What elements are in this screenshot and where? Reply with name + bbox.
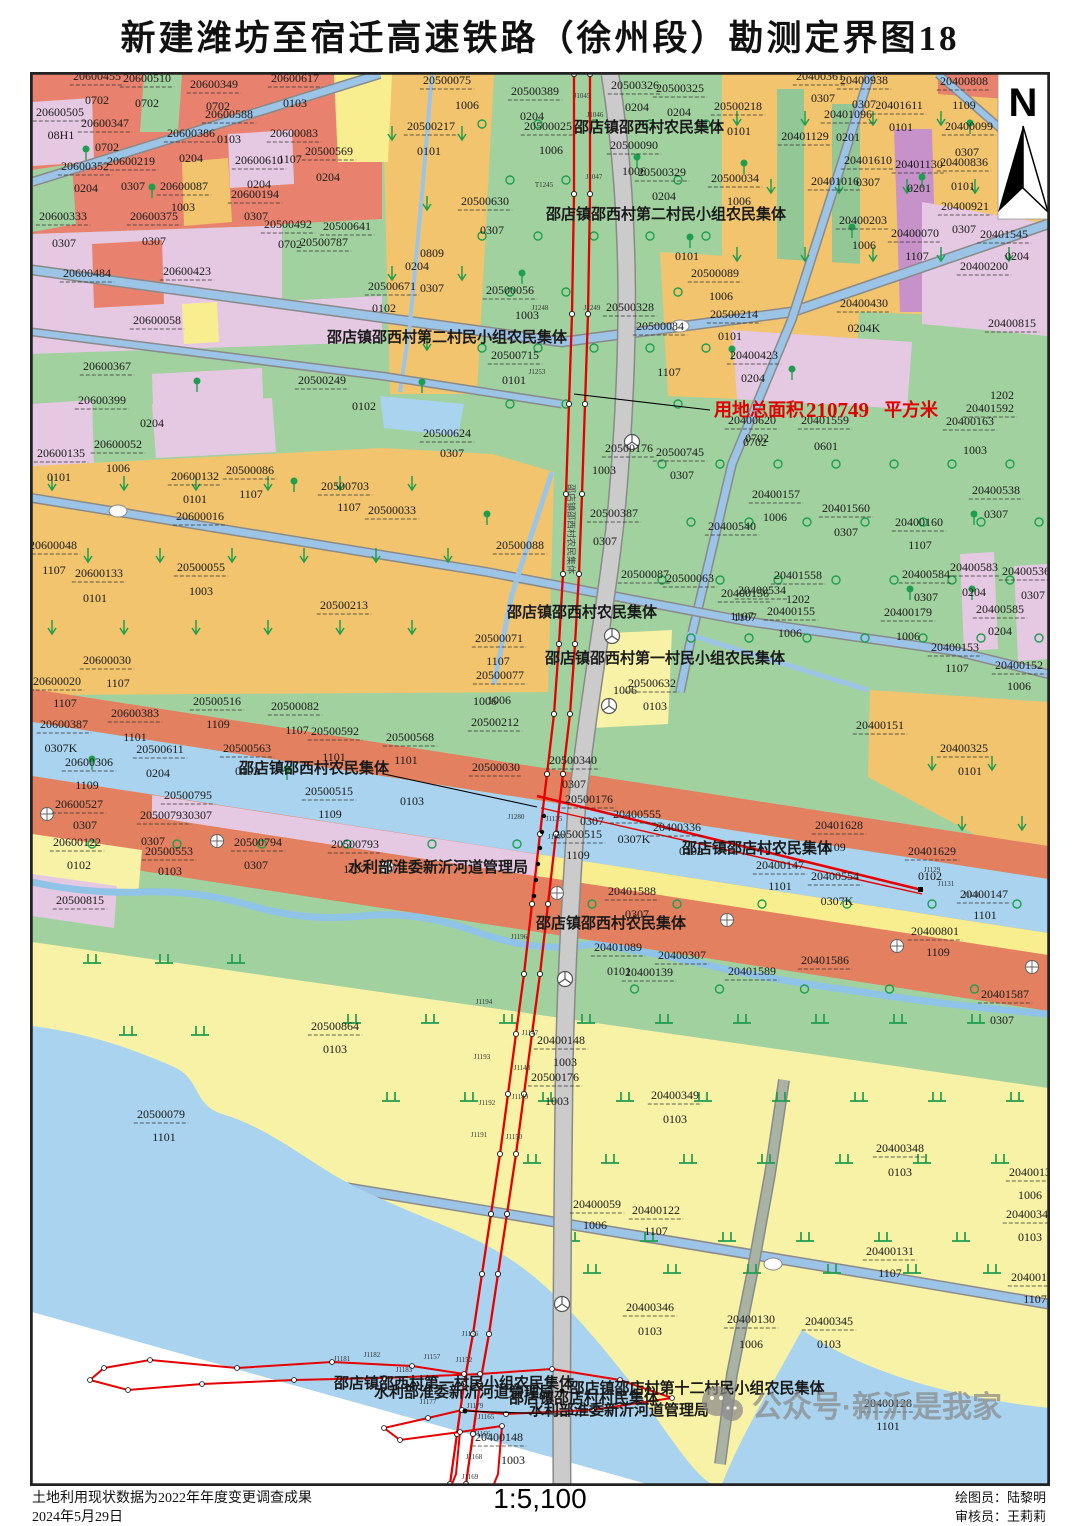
parcel-label: 20400938 <box>840 74 888 87</box>
parcel-label: 20600510 <box>123 74 171 85</box>
parcel-label: 20500213 <box>320 598 368 612</box>
parcel-label: 1109 <box>318 807 342 821</box>
owner-label: 邵店镇邵西村农民集体 <box>535 914 687 932</box>
parcel-label: 20600087 <box>160 179 208 193</box>
parcel-label: 20500030 <box>472 760 520 774</box>
parcel-label: 20401096 <box>824 107 872 121</box>
survey-point <box>521 971 526 976</box>
parcel-label: 1003 <box>553 1055 577 1069</box>
parcel-label: 20400347 <box>1006 1207 1048 1221</box>
parcel-label: 0204 <box>962 585 986 599</box>
parcel-label: 1006 <box>106 461 130 475</box>
parcel-label: 0101 <box>47 470 71 484</box>
survey-point <box>488 1211 493 1216</box>
parcel-label: 20500249 <box>298 373 346 387</box>
parcel-label: 20600058 <box>133 313 181 327</box>
parcel-label: 20600132 <box>171 469 219 483</box>
tree-symbol <box>291 478 298 485</box>
parcel-label: 20500671 <box>368 279 416 293</box>
tree-symbol <box>83 146 90 153</box>
parcel-label: 20600133 <box>75 566 123 580</box>
parcel-label: 20500630 <box>461 194 509 208</box>
parcel-label: 20400536 <box>1002 564 1048 578</box>
parcel-label: 20500089 <box>691 266 739 280</box>
parcel-label: 0601 <box>814 439 838 453</box>
parcel-label: 0103 <box>663 1112 687 1126</box>
tree-symbol <box>484 511 491 518</box>
parcel-label: 20400808 <box>940 74 988 88</box>
survey-point-label: J1193 <box>474 1053 491 1061</box>
parcel-label: 0204 <box>405 259 429 273</box>
parcel-label: 20500611 <box>136 742 184 756</box>
parcel-label: 20400534 <box>738 583 786 597</box>
owner-label: 邵店镇邵西村第二村民小组农民集体 <box>545 205 787 223</box>
survey-point-label: J1135 <box>546 815 563 823</box>
survey-point <box>497 1151 502 1156</box>
parcel-label: 20600588 <box>205 107 253 121</box>
parcel-label: 1107 <box>945 661 969 675</box>
parcel-label: 1109 <box>566 848 590 862</box>
survey-point <box>536 862 540 866</box>
survey-point-label: J1196 <box>511 933 528 941</box>
parcel-label: 20500077 <box>476 668 524 682</box>
parcel-label: 20400148 <box>537 1033 585 1047</box>
parcel-label: 20500794 <box>234 835 282 849</box>
parcel-label: 0307K <box>618 832 651 846</box>
parcel-label: 20500787 <box>300 235 348 249</box>
survey-point-label: J1280 <box>508 813 525 821</box>
tree-symbol <box>634 154 641 161</box>
parcel-label: 20600455 <box>73 74 121 83</box>
parcel-label: 1109 <box>206 717 230 731</box>
parcel-label: 0101 <box>675 249 699 263</box>
survey-point <box>513 1031 518 1036</box>
parcel-label: 20600347 <box>81 116 129 130</box>
parcel-label: 0307 <box>593 534 617 548</box>
parcel-label: 1107 <box>285 723 309 737</box>
survey-point-label: J1156 <box>462 1330 479 1338</box>
parcel-label: 1101 <box>973 908 997 922</box>
parcel-label: 20600423 <box>163 264 211 278</box>
parcel-label: 0102 <box>352 399 376 413</box>
tree-symbol <box>907 586 914 593</box>
land-parcel <box>182 302 219 344</box>
survey-point <box>486 1331 491 1336</box>
parcel-label: 0307K <box>821 894 854 908</box>
survey-point <box>292 1378 297 1383</box>
parcel-label: 20600016 <box>176 509 224 523</box>
survey-point-label: J1137 <box>548 833 565 841</box>
parcel-label: 0204 <box>316 170 340 184</box>
owner-label: 邵店镇邵店村农民集体 <box>681 839 833 857</box>
parcel-label: 20600484 <box>63 266 111 280</box>
parcel-label: 0204 <box>667 105 691 119</box>
parcel-label: 20400152 <box>995 658 1043 672</box>
survey-point-label: J1192 <box>479 1099 496 1107</box>
tree-symbol <box>789 366 796 373</box>
parcel-label: 0201 <box>836 130 860 144</box>
parcel-label: 08H1 <box>48 128 75 142</box>
parcel-label: 20600367 <box>83 359 131 373</box>
survey-point <box>458 1430 463 1435</box>
parcel-label: 20600122 <box>53 835 101 849</box>
parcel-label: 20400336 <box>653 820 701 834</box>
parcel-label: 1107 <box>106 676 130 690</box>
parcel-label: 20600048 <box>32 538 77 552</box>
parcel-label: 20400345 <box>805 1314 853 1328</box>
parcel-label: 20400070 <box>891 226 939 240</box>
parcel-label: 20400361 <box>796 74 844 83</box>
parcel-label: 20500063 <box>666 571 714 585</box>
parcel-label: 20500079 <box>137 1107 185 1121</box>
parcel-label: 20500084 <box>636 319 684 333</box>
parcel-label: 20400122 <box>632 1203 680 1217</box>
parcel-label: 20400139 <box>625 965 673 979</box>
parcel-label: 20401629 <box>908 844 956 858</box>
parcel-label: 0103 <box>323 1042 347 1056</box>
parcel-label: 20400540 <box>708 519 756 533</box>
parcel-label: 20400160 <box>895 515 943 529</box>
parcel-label: 20600083 <box>270 126 318 140</box>
parcel-label: 0101 <box>951 179 975 193</box>
parcel-label: 20500516 <box>193 694 241 708</box>
parcel-label: 0307 <box>990 1013 1014 1027</box>
footer-drafter: 绘图员：陆黎明 <box>955 1487 1046 1506</box>
survey-point-label: J1183 <box>396 1366 413 1374</box>
parcel-label: 0702 <box>95 140 119 154</box>
bridge-symbol <box>764 1258 782 1270</box>
parcel-label: 20600375 <box>130 209 178 223</box>
parcel-label: 20401089 <box>594 940 642 954</box>
survey-point-label: J1046 <box>587 111 604 119</box>
survey-point <box>88 1378 93 1383</box>
parcel-label: 20400423 <box>730 348 778 362</box>
footer-reviewer: 审核员：王莉莉 <box>955 1506 1046 1525</box>
parcel-label: 0307 <box>670 468 694 482</box>
parcel-label: 0307 <box>188 808 212 822</box>
survey-point <box>576 571 581 576</box>
survey-point <box>566 401 571 406</box>
parcel-label: 0101 <box>727 124 751 138</box>
survey-point <box>504 1211 509 1216</box>
parcel-label: 1202 <box>990 388 1014 402</box>
survey-point <box>540 830 544 834</box>
parcel-label: 20600617 <box>271 74 319 85</box>
parcel-label: 20600387 <box>40 717 88 731</box>
owner-label: 邵店镇邵西村第一村民小组农民集体 <box>544 649 786 667</box>
parcel-label: 0702 <box>85 93 109 107</box>
parcel-label: 1107 <box>644 1224 668 1238</box>
parcel-label: 0307 <box>121 179 145 193</box>
parcel-label: 0307 <box>580 814 604 828</box>
parcel-label: 0307 <box>984 507 1008 521</box>
parcel-label: 20401016 <box>811 174 859 188</box>
parcel-label: 1107 <box>657 365 681 379</box>
parcel-label: 20500641 <box>323 219 371 233</box>
parcel-label: 1006 <box>778 626 802 640</box>
parcel-label: 20600505 <box>36 105 84 119</box>
parcel-label: 20401628 <box>815 818 863 832</box>
parcel-label: 0307 <box>856 175 880 189</box>
owner-label: 邵店镇邵西村农民集体 <box>506 603 658 621</box>
parcel-label: 0307K <box>45 741 78 755</box>
parcel-label: 20500034 <box>711 171 759 185</box>
parcel-label: 20500212 <box>471 715 519 729</box>
survey-point-label: J1248 <box>532 304 549 312</box>
parcel-label: 20600383 <box>111 706 159 720</box>
parcel-label: 0204 <box>146 766 170 780</box>
survey-point <box>529 901 534 906</box>
survey-map-svg: 2060045520600510206003492060061707020702… <box>32 74 1048 1484</box>
parcel-label: 20401586 <box>801 953 849 967</box>
parcel-label: 1109 <box>926 945 950 959</box>
parcel-label: 20600306 <box>65 755 113 769</box>
parcel-label: 20500515 <box>305 784 353 798</box>
survey-point <box>585 311 590 316</box>
survey-point <box>538 846 542 850</box>
parcel-label: 1003 <box>189 584 213 598</box>
survey-point <box>382 1426 387 1431</box>
survey-point <box>545 901 550 906</box>
parcel-label: 1006 <box>727 194 751 208</box>
parcel-label: 1107 <box>239 487 263 501</box>
tree-symbol <box>149 184 156 191</box>
parcel-label: 20400130 <box>727 1312 775 1326</box>
parcel-label: 20400584 <box>902 567 950 581</box>
survey-point-label: J1194 <box>476 998 493 1006</box>
parcel-label: 1109 <box>952 98 976 112</box>
survey-point <box>505 1091 510 1096</box>
parcel-label: 20600219 <box>107 154 155 168</box>
parcel-label: 0307 <box>1021 588 1045 602</box>
parcel-label: 20500214 <box>710 307 758 321</box>
parcel-label: 1006 <box>1018 1188 1042 1202</box>
parcel-label: 0101 <box>183 492 207 506</box>
parcel-label: 20400346 <box>626 1300 674 1314</box>
parcel-label: 20400157 <box>752 487 800 501</box>
parcel-label: 0103 <box>888 1165 912 1179</box>
parcel-label: 20400585 <box>976 602 1024 616</box>
survey-point <box>560 571 565 576</box>
parcel-label: 0201 <box>907 181 931 195</box>
parcel-label: 1006 <box>896 629 920 643</box>
parcel-label: 20600399 <box>78 393 126 407</box>
parcel-label: 0702 <box>135 96 159 110</box>
parcel-label: 20600020 <box>33 674 81 688</box>
parcel-label: 20500176 <box>565 792 613 806</box>
parcel-label: 1107 <box>337 500 361 514</box>
survey-point-label: J1179 <box>467 1402 484 1410</box>
survey-point <box>556 641 561 646</box>
parcel-label: 20500715 <box>491 348 539 362</box>
parcel-label: 20500088 <box>496 538 544 552</box>
parcel-label: 20400179 <box>884 605 932 619</box>
parcel-label: 1101 <box>152 1130 176 1144</box>
parcel-label: 20400128 <box>864 1396 912 1410</box>
parcel-label: 0204 <box>74 181 98 195</box>
survey-point-label: J1177 <box>420 1398 437 1406</box>
parcel-label: 20600386 <box>167 126 215 140</box>
parcel-label: 1109 <box>75 778 99 792</box>
parcel-label: 20400921 <box>941 199 989 213</box>
parcel-label: 20500795 <box>164 788 212 802</box>
parcel-label: 20500815 <box>56 893 104 907</box>
parcel-label: 20500592 <box>311 724 359 738</box>
parcel-label: 0101 <box>83 591 107 605</box>
parcel-label: 20500218 <box>714 99 762 113</box>
parcel-label: 20400155 <box>767 604 815 618</box>
survey-point <box>571 191 576 196</box>
parcel-label: 20600194 <box>231 187 279 201</box>
parcel-label: 20400134 <box>1009 1165 1048 1179</box>
survey-point-label: J1253 <box>529 368 546 376</box>
parcel-label: 20500025 <box>524 119 572 133</box>
survey-point <box>398 1438 403 1443</box>
survey-point <box>513 1151 518 1156</box>
parcel-label: 0101 <box>417 144 441 158</box>
survey-point-label: J1150 <box>506 1133 523 1141</box>
parcel-label: 0103 <box>283 96 307 110</box>
survey-point-label: J1168 <box>466 1453 483 1461</box>
survey-point <box>126 1388 131 1393</box>
parcel-label: 20500389 <box>511 84 559 98</box>
survey-point <box>426 1416 431 1421</box>
parcel-label: 20500056 <box>486 283 534 297</box>
parcel-label: 20400131 <box>866 1244 914 1258</box>
parcel-label: 20400151 <box>856 718 904 732</box>
parcel-label: 20500492 <box>264 217 312 231</box>
survey-point-label: T1245 <box>535 181 554 189</box>
owner-label: 邵店镇邵西村农民集体 <box>238 759 390 777</box>
parcel-label: 0307 <box>244 858 268 872</box>
survey-map-page: 新建潍坊至宿迁高速铁路（徐州段）勘测定界图18 2060045520600510… <box>0 0 1080 1526</box>
parcel-label: 20500328 <box>606 300 654 314</box>
parcel-label: 20401560 <box>822 501 870 515</box>
parcel-label: 20600527 <box>55 797 103 811</box>
parcel-label: 1006 <box>709 289 733 303</box>
parcel-label: 20500632 <box>628 676 676 690</box>
tree-symbol <box>687 234 694 241</box>
parcel-label: 0307 <box>73 818 97 832</box>
survey-point <box>569 311 574 316</box>
owner-label: 水利部淮委新沂河道管理局 <box>529 1401 709 1419</box>
survey-point <box>200 1382 205 1387</box>
parcel-label: 0204K <box>848 321 881 335</box>
parcel-label: 20400307 <box>658 948 706 962</box>
owner-label: 邵店镇邵西村农民集体 <box>573 118 725 136</box>
survey-point-label: J1191 <box>471 1131 488 1139</box>
survey-point-label: J1249 <box>584 304 601 312</box>
parcel-label: 1003 <box>592 463 616 477</box>
parcel-label: 0204 <box>652 189 676 203</box>
parcel-label: 0204 <box>741 371 765 385</box>
map-frame: 2060045520600510206003492060061707020702… <box>30 72 1050 1486</box>
parcel-label: 20500033 <box>368 503 416 517</box>
parcel-label: 20400583 <box>950 560 998 574</box>
parcel-label: 20600610 <box>235 153 283 167</box>
parcel-label: 1107 <box>53 696 77 710</box>
parcel-label: 20400163 <box>946 414 994 428</box>
parcel-label: 20600333 <box>39 209 87 223</box>
survey-point <box>544 771 549 776</box>
parcel-label: 20500703 <box>321 479 369 493</box>
parcel-label: 20500563 <box>223 741 271 755</box>
survey-point-label: J1157 <box>424 1353 441 1361</box>
parcel-label: 20400555 <box>613 807 661 821</box>
parcel-label: 20400348 <box>876 1141 924 1155</box>
parcel-label: 0101 <box>889 120 913 134</box>
page-title: 新建潍坊至宿迁高速铁路（徐州段）勘测定界图18 <box>0 10 1080 61</box>
survey-point-label: J1182 <box>364 1351 381 1359</box>
parcel-label: 20600352 <box>61 159 109 173</box>
parcel-label: 20600052 <box>94 437 142 451</box>
parcel-label: 20600030 <box>83 653 131 667</box>
parcel-label: 20400538 <box>972 483 1020 497</box>
parcel-label: 0102 <box>67 858 91 872</box>
survey-point <box>579 491 584 496</box>
parcel-label: 20600349 <box>190 77 238 91</box>
parcel-label: 20401130 <box>895 157 943 171</box>
parcel-label: 20500055 <box>177 560 225 574</box>
parcel-label: 20401588 <box>608 884 656 898</box>
parcel-label: 20401587 <box>981 987 1029 1001</box>
parcel-label: 20400129 <box>1011 1270 1048 1284</box>
survey-point <box>560 771 565 776</box>
parcel-label: 0307 <box>914 590 938 604</box>
survey-point <box>537 971 542 976</box>
owner-label-vertical: 邵店镇邵西村农民集体 <box>566 484 577 574</box>
parcel-label: 1006 <box>1007 679 1031 693</box>
parcel-label: 1101 <box>768 879 792 893</box>
parcel-label: 20500082 <box>271 699 319 713</box>
parcel-label: 20400430 <box>840 296 888 310</box>
parcel-label: 1006 <box>455 98 479 112</box>
parcel-label: 0103 <box>1018 1230 1042 1244</box>
parcel-label: 0204 <box>988 624 1012 638</box>
parcel-label: 1107 <box>878 1266 902 1280</box>
survey-point-label: J1047 <box>586 173 603 181</box>
parcel-label: 0204 <box>1005 249 1029 263</box>
parcel-label: 1006 <box>539 143 563 157</box>
parcel-label: 0307 <box>52 236 76 250</box>
parcel-label: 0307 <box>811 91 835 105</box>
parcel-label: 20500325 <box>656 81 704 95</box>
parcel-label: 1107 <box>905 249 929 263</box>
parcel-label: 20500217 <box>407 119 455 133</box>
parcel-label: 20600135 <box>37 446 85 460</box>
tree-symbol <box>971 511 978 518</box>
parcel-label: 0103 <box>638 1324 662 1338</box>
parcel-label: 20401592 <box>966 401 1014 415</box>
parcel-label: 0103 <box>817 1337 841 1351</box>
parcel-label: 1101 <box>394 753 418 767</box>
survey-point <box>479 1271 484 1276</box>
survey-point-label: J1166 <box>474 1430 491 1438</box>
parcel-label: 20401545 <box>980 227 1028 241</box>
parcel-label: 0101 <box>502 373 526 387</box>
parcel-label: 0307 <box>142 234 166 248</box>
survey-point-label: J1169 <box>462 1473 479 1481</box>
parcel-label: 1006 <box>739 1337 763 1351</box>
tree-symbol <box>919 174 926 181</box>
survey-point-label: J1045 <box>574 92 591 100</box>
parcel-label: 20500176 <box>531 1070 579 1084</box>
parcel-label: 1003 <box>501 1453 525 1467</box>
parcel-label: 20400153 <box>931 640 979 654</box>
survey-point-label: J1152 <box>456 1356 473 1364</box>
parcel-label: 0103 <box>217 132 241 146</box>
parcel-label: 0101 <box>718 329 742 343</box>
